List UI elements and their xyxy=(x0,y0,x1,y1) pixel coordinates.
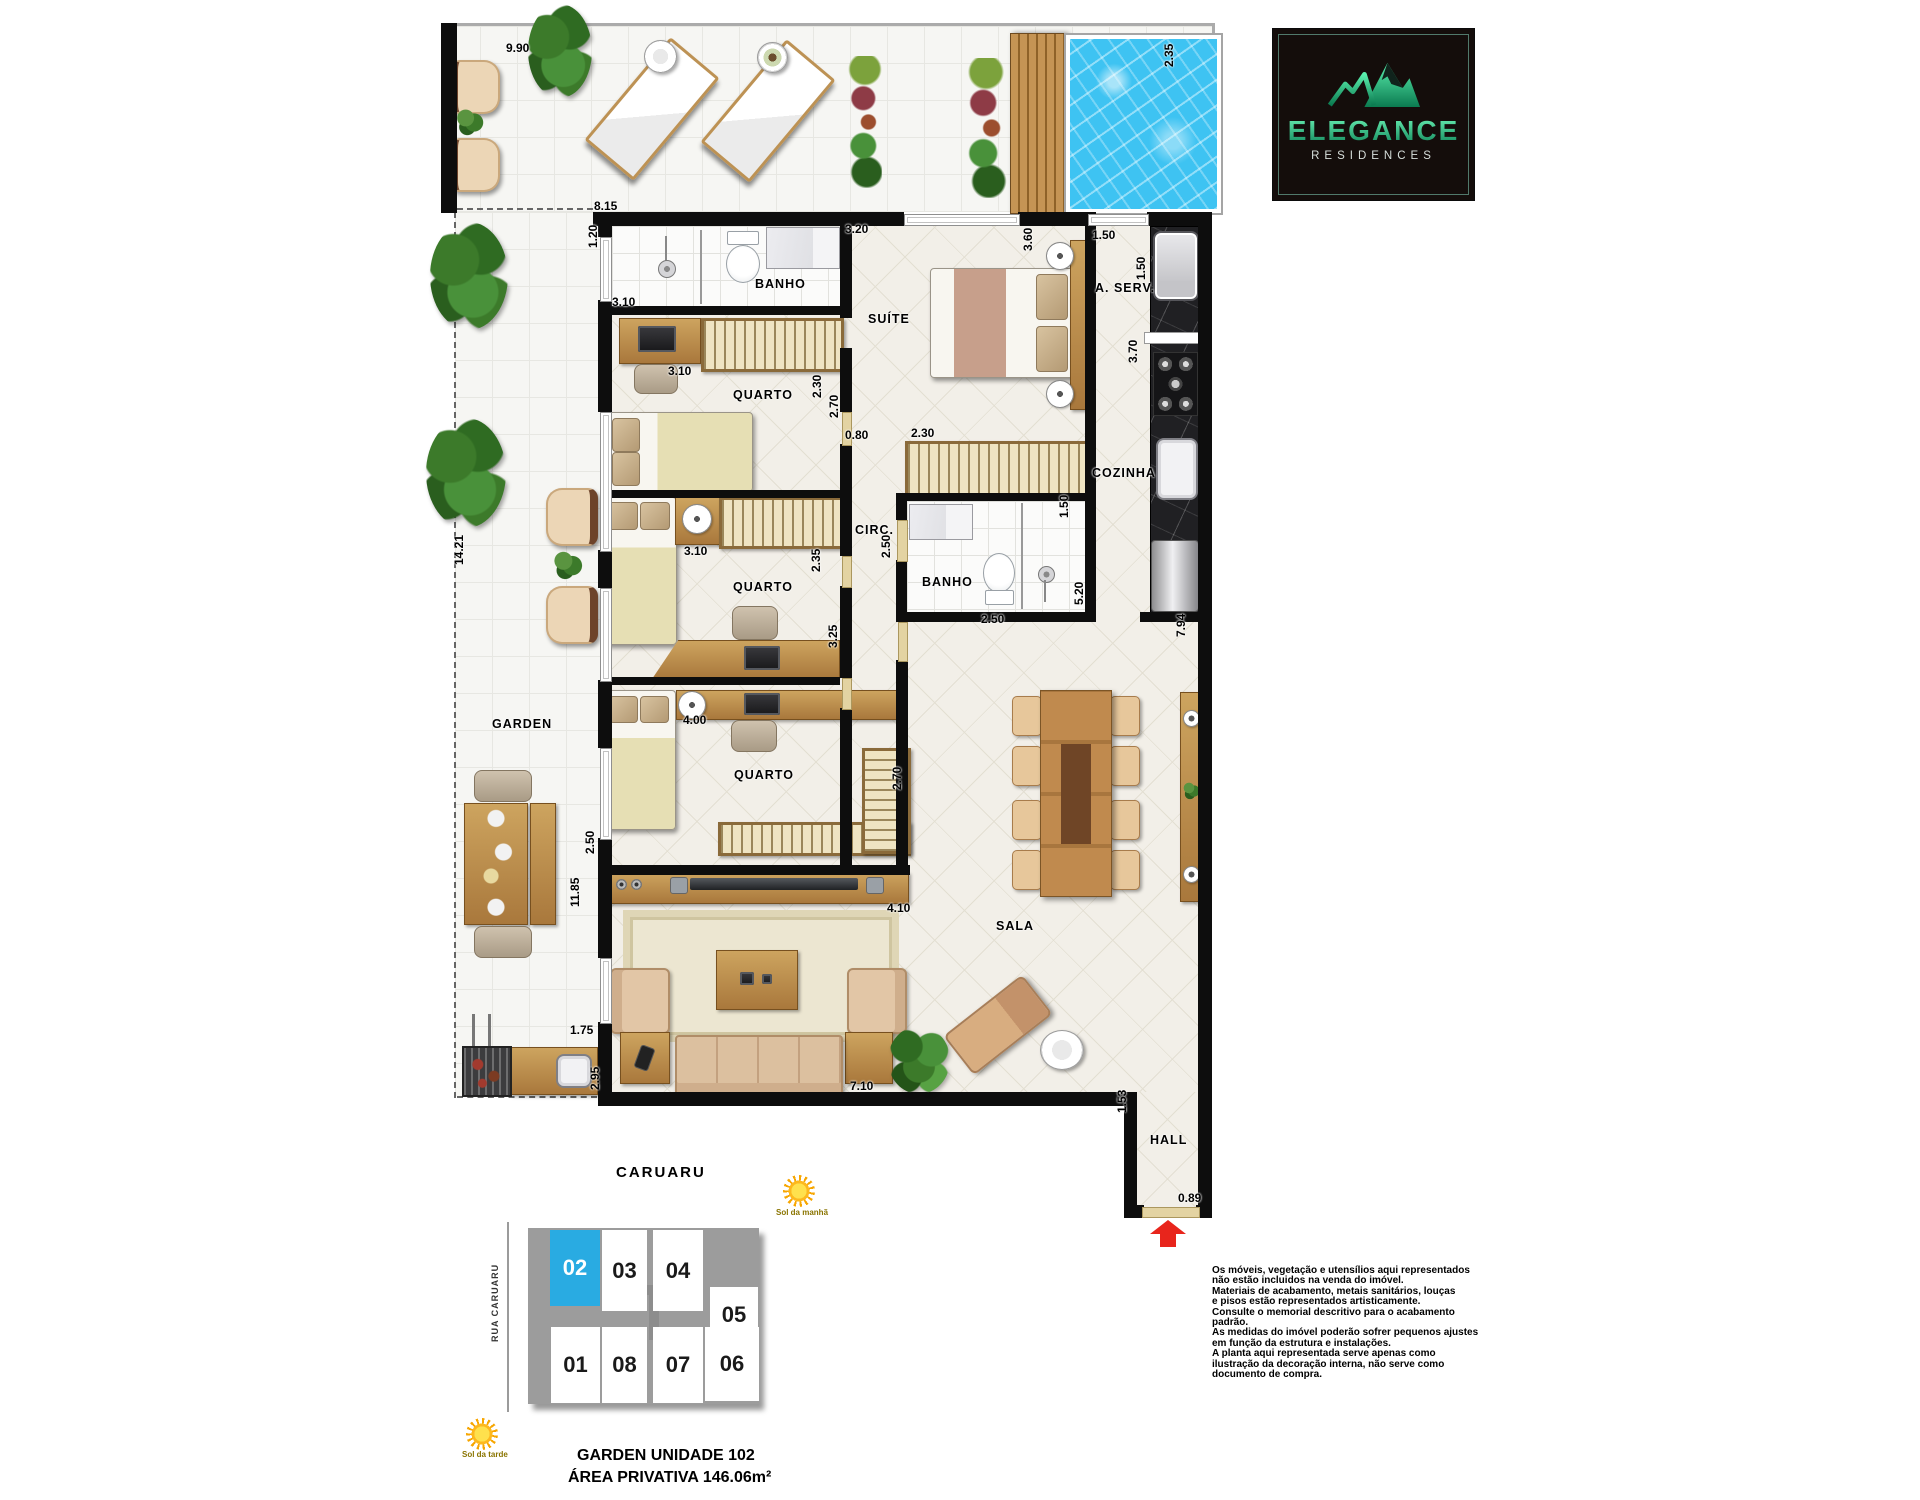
floorplan-page: ELEGANCE RESIDENCES CARUARU Sol da manhã… xyxy=(0,0,1920,1500)
pillow xyxy=(612,452,640,486)
dimension-0.80: 0.80 xyxy=(845,429,868,442)
shower-head-icon xyxy=(1038,566,1055,583)
room-label-banho: BANHO xyxy=(755,277,806,291)
bbq-sink xyxy=(556,1054,592,1088)
room-label-cozinha: COZINHA xyxy=(1092,466,1156,480)
dimension-4.00: 4.00 xyxy=(683,714,706,727)
dimension-5.20: 5.20 xyxy=(1073,582,1086,605)
planter xyxy=(958,58,1014,198)
dining-chair xyxy=(1012,800,1042,840)
pillow xyxy=(640,502,670,530)
terrace-armchair xyxy=(450,60,500,114)
desk-chair xyxy=(732,606,778,640)
dimension-2.35: 2.35 xyxy=(810,549,823,572)
remote xyxy=(762,974,772,984)
dimension-1.50: 1.50 xyxy=(1092,229,1115,242)
bbq-grill xyxy=(462,1046,512,1097)
shower-stem xyxy=(1044,580,1046,602)
dimension-9.90: 9.90 xyxy=(506,42,529,55)
mountain-icon xyxy=(1326,55,1422,113)
pillow xyxy=(612,418,640,452)
wall-segment xyxy=(598,300,612,412)
unit-area: ÁREA PRIVATIVA 146.06m² xyxy=(568,1469,771,1487)
garden-bench xyxy=(530,803,556,925)
dimension-2.35: 2.35 xyxy=(1163,44,1176,67)
unit-cell-01: 01 xyxy=(551,1327,600,1403)
garden-table xyxy=(464,803,528,925)
room-label-hall: HALL xyxy=(1150,1133,1187,1147)
computer xyxy=(744,693,780,715)
dimension-3.20: 3.20 xyxy=(845,223,868,236)
pillow xyxy=(609,696,638,723)
window xyxy=(600,412,612,552)
laptop xyxy=(638,326,676,352)
potted-plant xyxy=(549,548,585,580)
building-map: 0203040501080706 xyxy=(528,1228,759,1404)
wardrobe xyxy=(719,497,844,549)
garden-boundary xyxy=(454,212,456,1098)
dimension-2.70: 2.70 xyxy=(828,395,841,418)
dimension-0.89: 0.89 xyxy=(1178,1192,1201,1205)
dimension-2.70: 2.70 xyxy=(891,767,904,790)
door xyxy=(1142,1207,1200,1218)
disclaimer-line: documento de compra. xyxy=(1212,1370,1522,1380)
window xyxy=(600,588,612,682)
dining-chair xyxy=(1110,850,1140,890)
dining-chair xyxy=(1110,800,1140,840)
unit-cell-04: 04 xyxy=(653,1230,703,1311)
unit-cell-02: 02 xyxy=(550,1230,600,1306)
room-label-quarto: QUARTO xyxy=(733,388,793,402)
bbq-skewer xyxy=(472,1014,475,1048)
dimension-2.95: 2.95 xyxy=(589,1067,602,1090)
desk xyxy=(676,690,900,720)
brand-logo: ELEGANCE RESIDENCES xyxy=(1272,28,1475,201)
dining-chair xyxy=(1012,696,1042,736)
armchair xyxy=(610,968,670,1034)
desk-chair xyxy=(731,720,777,752)
window xyxy=(600,958,612,1024)
round-side-table xyxy=(757,42,788,73)
unit-cell-06: 06 xyxy=(705,1327,759,1401)
tree xyxy=(426,418,506,528)
shower-head-icon xyxy=(658,260,676,278)
door xyxy=(898,622,908,662)
garden-armchair xyxy=(546,586,598,644)
planter xyxy=(848,56,882,188)
pool xyxy=(1066,35,1221,213)
kitchen-sink xyxy=(1156,438,1198,500)
wall-segment xyxy=(840,708,852,868)
potted-plant xyxy=(452,106,486,136)
shower-stem xyxy=(665,236,667,262)
dimension-3.10: 3.10 xyxy=(684,545,707,558)
terrace-armchair xyxy=(450,138,500,192)
unit-cell-07: 07 xyxy=(653,1327,703,1403)
morning-sun-label: Sol da manhã xyxy=(776,1208,828,1217)
dimension-1.75: 1.75 xyxy=(570,1024,593,1037)
dimension-14.21: 14.21 xyxy=(453,535,466,565)
wall-segment xyxy=(896,501,907,520)
tree xyxy=(430,222,508,330)
room-label-sute: SUÍTE xyxy=(868,312,910,326)
dining-chair xyxy=(1012,850,1042,890)
dimension-3.70: 3.70 xyxy=(1127,340,1140,363)
dimension-3.60: 3.60 xyxy=(1022,228,1035,251)
afternoon-sun-label: Sol da tarde xyxy=(462,1450,508,1459)
pillow xyxy=(1036,326,1068,372)
unit-cell-08: 08 xyxy=(602,1327,647,1403)
console-box xyxy=(866,877,884,894)
counter-shelf xyxy=(1144,332,1200,344)
pillow xyxy=(1036,274,1068,320)
dining-table xyxy=(1040,690,1112,897)
wall-segment xyxy=(1198,212,1212,1218)
wall-segment xyxy=(1018,212,1088,226)
shower-divider xyxy=(1021,503,1023,609)
stove xyxy=(1153,352,1198,416)
dimension-2.50: 2.50 xyxy=(584,831,597,854)
dimension-2.30: 2.30 xyxy=(811,375,824,398)
window xyxy=(1088,214,1149,226)
toilet-bowl xyxy=(983,553,1015,593)
dimension-2.50: 2.50 xyxy=(981,613,1004,626)
nightstand-lamp xyxy=(1046,380,1074,408)
wall-segment xyxy=(896,560,907,620)
garden-armchair xyxy=(546,488,598,546)
wall-segment xyxy=(598,1092,1137,1106)
pillow xyxy=(608,502,638,530)
wall-segment xyxy=(1085,493,1096,620)
street-label: RUA CARUARU xyxy=(490,1264,500,1342)
entrance-arrow xyxy=(1150,1220,1186,1247)
dining-chair xyxy=(1012,746,1042,786)
room-label-quarto: QUARTO xyxy=(733,580,793,594)
nightstand-lamp xyxy=(1046,242,1074,270)
window xyxy=(600,237,612,302)
dimension-3.25: 3.25 xyxy=(827,625,840,648)
dining-chair xyxy=(1110,746,1140,786)
vanity-sink xyxy=(909,504,973,540)
wall-segment xyxy=(1124,1205,1144,1218)
wardrobe xyxy=(905,441,1088,497)
dimension-7.10: 7.10 xyxy=(850,1080,873,1093)
wall-segment xyxy=(598,680,612,748)
dimension-7.94: 7.94 xyxy=(1175,614,1188,637)
room-label-circ: CIRC. xyxy=(855,523,894,537)
dimension-1.50: 1.50 xyxy=(1058,495,1071,518)
wall-segment xyxy=(612,490,840,498)
dining-chair xyxy=(1110,696,1140,736)
logo-tagline: RESIDENCES xyxy=(1311,150,1436,162)
shower-divider xyxy=(700,230,702,304)
vanity-sink xyxy=(766,227,840,269)
armchair xyxy=(847,968,907,1034)
afternoon-sun-icon xyxy=(466,1418,498,1450)
logo-title: ELEGANCE xyxy=(1288,115,1460,147)
disclaimer-text: Os móveis, vegetação e utensílios aqui r… xyxy=(1212,1266,1522,1380)
unit-title: GARDEN UNIDADE 102 xyxy=(577,1447,755,1465)
wall-segment xyxy=(1085,212,1096,493)
computer xyxy=(744,646,780,670)
side-table xyxy=(845,1032,893,1084)
washing-machine xyxy=(1153,231,1199,301)
toilet-tank xyxy=(727,231,759,245)
morning-sun-icon xyxy=(783,1175,815,1207)
dimension-1.53: 1.53 xyxy=(1116,1090,1129,1113)
hall-floor xyxy=(1137,1092,1198,1207)
garden-boundary xyxy=(457,208,593,210)
wall-segment xyxy=(598,212,612,237)
street-line xyxy=(507,1222,509,1412)
door xyxy=(842,556,852,588)
wall-segment xyxy=(840,348,852,412)
window xyxy=(600,748,612,840)
wall-segment xyxy=(896,660,908,865)
fridge xyxy=(1151,540,1199,612)
dimension-8.15: 8.15 xyxy=(594,200,617,213)
garden-chair xyxy=(474,770,532,802)
remote xyxy=(740,972,754,985)
dimension-4.10: 4.10 xyxy=(887,902,910,915)
arrow-stem xyxy=(1160,1234,1176,1247)
speaker-icon xyxy=(631,879,642,890)
coffee-table xyxy=(716,950,798,1010)
plant xyxy=(888,1026,950,1094)
disclaimer-line: Consulte o memorial descritivo para o ac… xyxy=(1212,1308,1522,1318)
sofa xyxy=(675,1035,843,1097)
room-label-quarto: QUARTO xyxy=(734,768,794,782)
console-box xyxy=(670,877,688,894)
dimension-11.85: 11.85 xyxy=(569,878,582,907)
window xyxy=(904,214,1020,226)
wall-segment xyxy=(840,444,852,556)
bbq-skewer xyxy=(488,1014,491,1048)
wardrobe xyxy=(701,318,844,372)
door xyxy=(897,520,908,562)
dimension-3.10: 3.10 xyxy=(612,296,635,309)
arrow-head-icon xyxy=(1150,1220,1186,1234)
dimension-3.10: 3.10 xyxy=(668,365,691,378)
round-side-table xyxy=(644,40,677,73)
toilet-tank xyxy=(985,590,1014,605)
room-label-banho: BANHO xyxy=(922,575,973,589)
room-label-garden: GARDEN xyxy=(492,717,552,731)
tree xyxy=(528,4,592,98)
room-label-sala: SALA xyxy=(996,919,1034,933)
decor xyxy=(1329,74,1373,105)
speaker-icon xyxy=(616,879,627,890)
wall-segment xyxy=(598,865,910,875)
wall-segment xyxy=(441,23,457,213)
wall-segment xyxy=(598,838,612,958)
room-label-aserv: A. SERV. xyxy=(1095,281,1155,295)
wall-segment xyxy=(612,306,842,315)
dimension-1.50: 1.50 xyxy=(1135,257,1148,280)
unit-cell-03: 03 xyxy=(602,1230,647,1311)
tv xyxy=(690,878,858,890)
street-heading: CARUARU xyxy=(616,1164,706,1181)
dimension-2.30: 2.30 xyxy=(911,427,934,440)
dimension-2.50: 2.50 xyxy=(880,535,893,558)
round-side-table xyxy=(1040,1030,1084,1070)
wall-segment xyxy=(612,677,840,685)
pillow xyxy=(640,696,669,723)
wall-segment xyxy=(840,586,852,678)
wall-segment xyxy=(598,550,612,588)
door xyxy=(842,678,852,710)
nightstand-lamp xyxy=(682,504,712,534)
dimension-1.20: 1.20 xyxy=(587,225,600,248)
garden-chair xyxy=(474,926,532,958)
pool-deck xyxy=(1010,33,1066,214)
garden-floor xyxy=(455,212,615,1096)
